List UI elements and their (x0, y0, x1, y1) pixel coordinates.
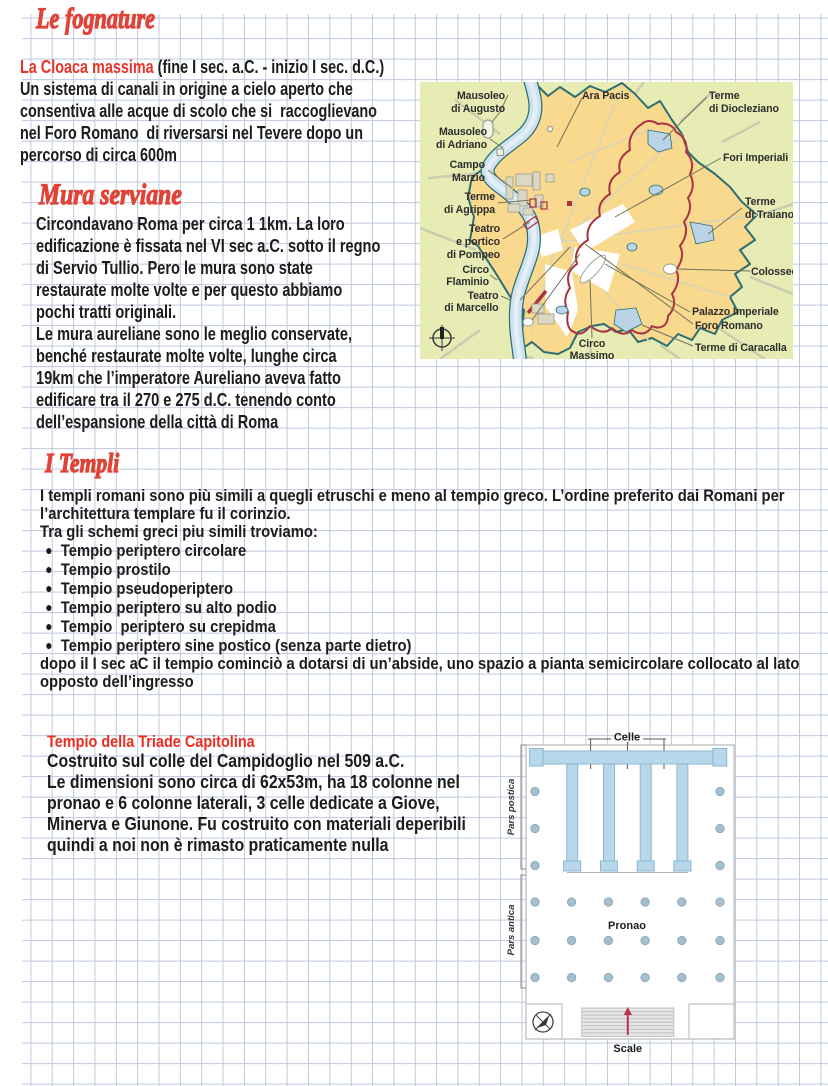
svg-text:e portico: e portico (456, 236, 500, 248)
svg-text:Mausoleo: Mausoleo (439, 126, 488, 138)
svg-text:di Agrippa: di Agrippa (444, 204, 495, 216)
svg-text:di Augusto: di Augusto (451, 103, 506, 115)
svg-text:Colosseo: Colosseo (751, 266, 793, 278)
svg-text:Campo: Campo (450, 159, 486, 171)
svg-text:Ara Pacis: Ara Pacis (582, 90, 630, 102)
svg-text:Flaminio: Flaminio (446, 276, 489, 288)
svg-text:Marzio: Marzio (452, 172, 486, 184)
svg-text:di Traiano: di Traiano (745, 209, 793, 221)
svg-text:Circo: Circo (579, 338, 606, 350)
svg-text:Pars postica: Pars postica (506, 779, 517, 836)
svg-text:Celle: Celle (614, 732, 640, 744)
svg-text:Fori Imperiali: Fori Imperiali (723, 152, 788, 164)
svg-text:di Pompeo: di Pompeo (447, 249, 501, 261)
svg-text:Terme di Caracalla: Terme di Caracalla (695, 342, 787, 354)
svg-text:Teatro: Teatro (468, 290, 500, 302)
svg-text:Foro Romano: Foro Romano (695, 320, 763, 332)
svg-text:di Diocleziano: di Diocleziano (709, 103, 779, 115)
svg-text:Terme: Terme (745, 196, 776, 208)
svg-text:Mausoleo: Mausoleo (457, 90, 506, 102)
svg-text:di Marcello: di Marcello (444, 302, 499, 314)
svg-text:Terme: Terme (464, 191, 495, 203)
svg-text:Circo: Circo (462, 264, 489, 276)
svg-text:Pars antica: Pars antica (506, 905, 517, 956)
svg-text:Terme: Terme (709, 90, 740, 102)
svg-text:di Adriano: di Adriano (436, 139, 488, 151)
svg-text:Scale: Scale (613, 1043, 642, 1055)
svg-text:Massimo: Massimo (570, 350, 615, 359)
svg-text:Pronao: Pronao (608, 920, 646, 932)
svg-text:Palazzo Imperiale: Palazzo Imperiale (692, 306, 779, 318)
svg-text:Teatro: Teatro (469, 223, 501, 235)
